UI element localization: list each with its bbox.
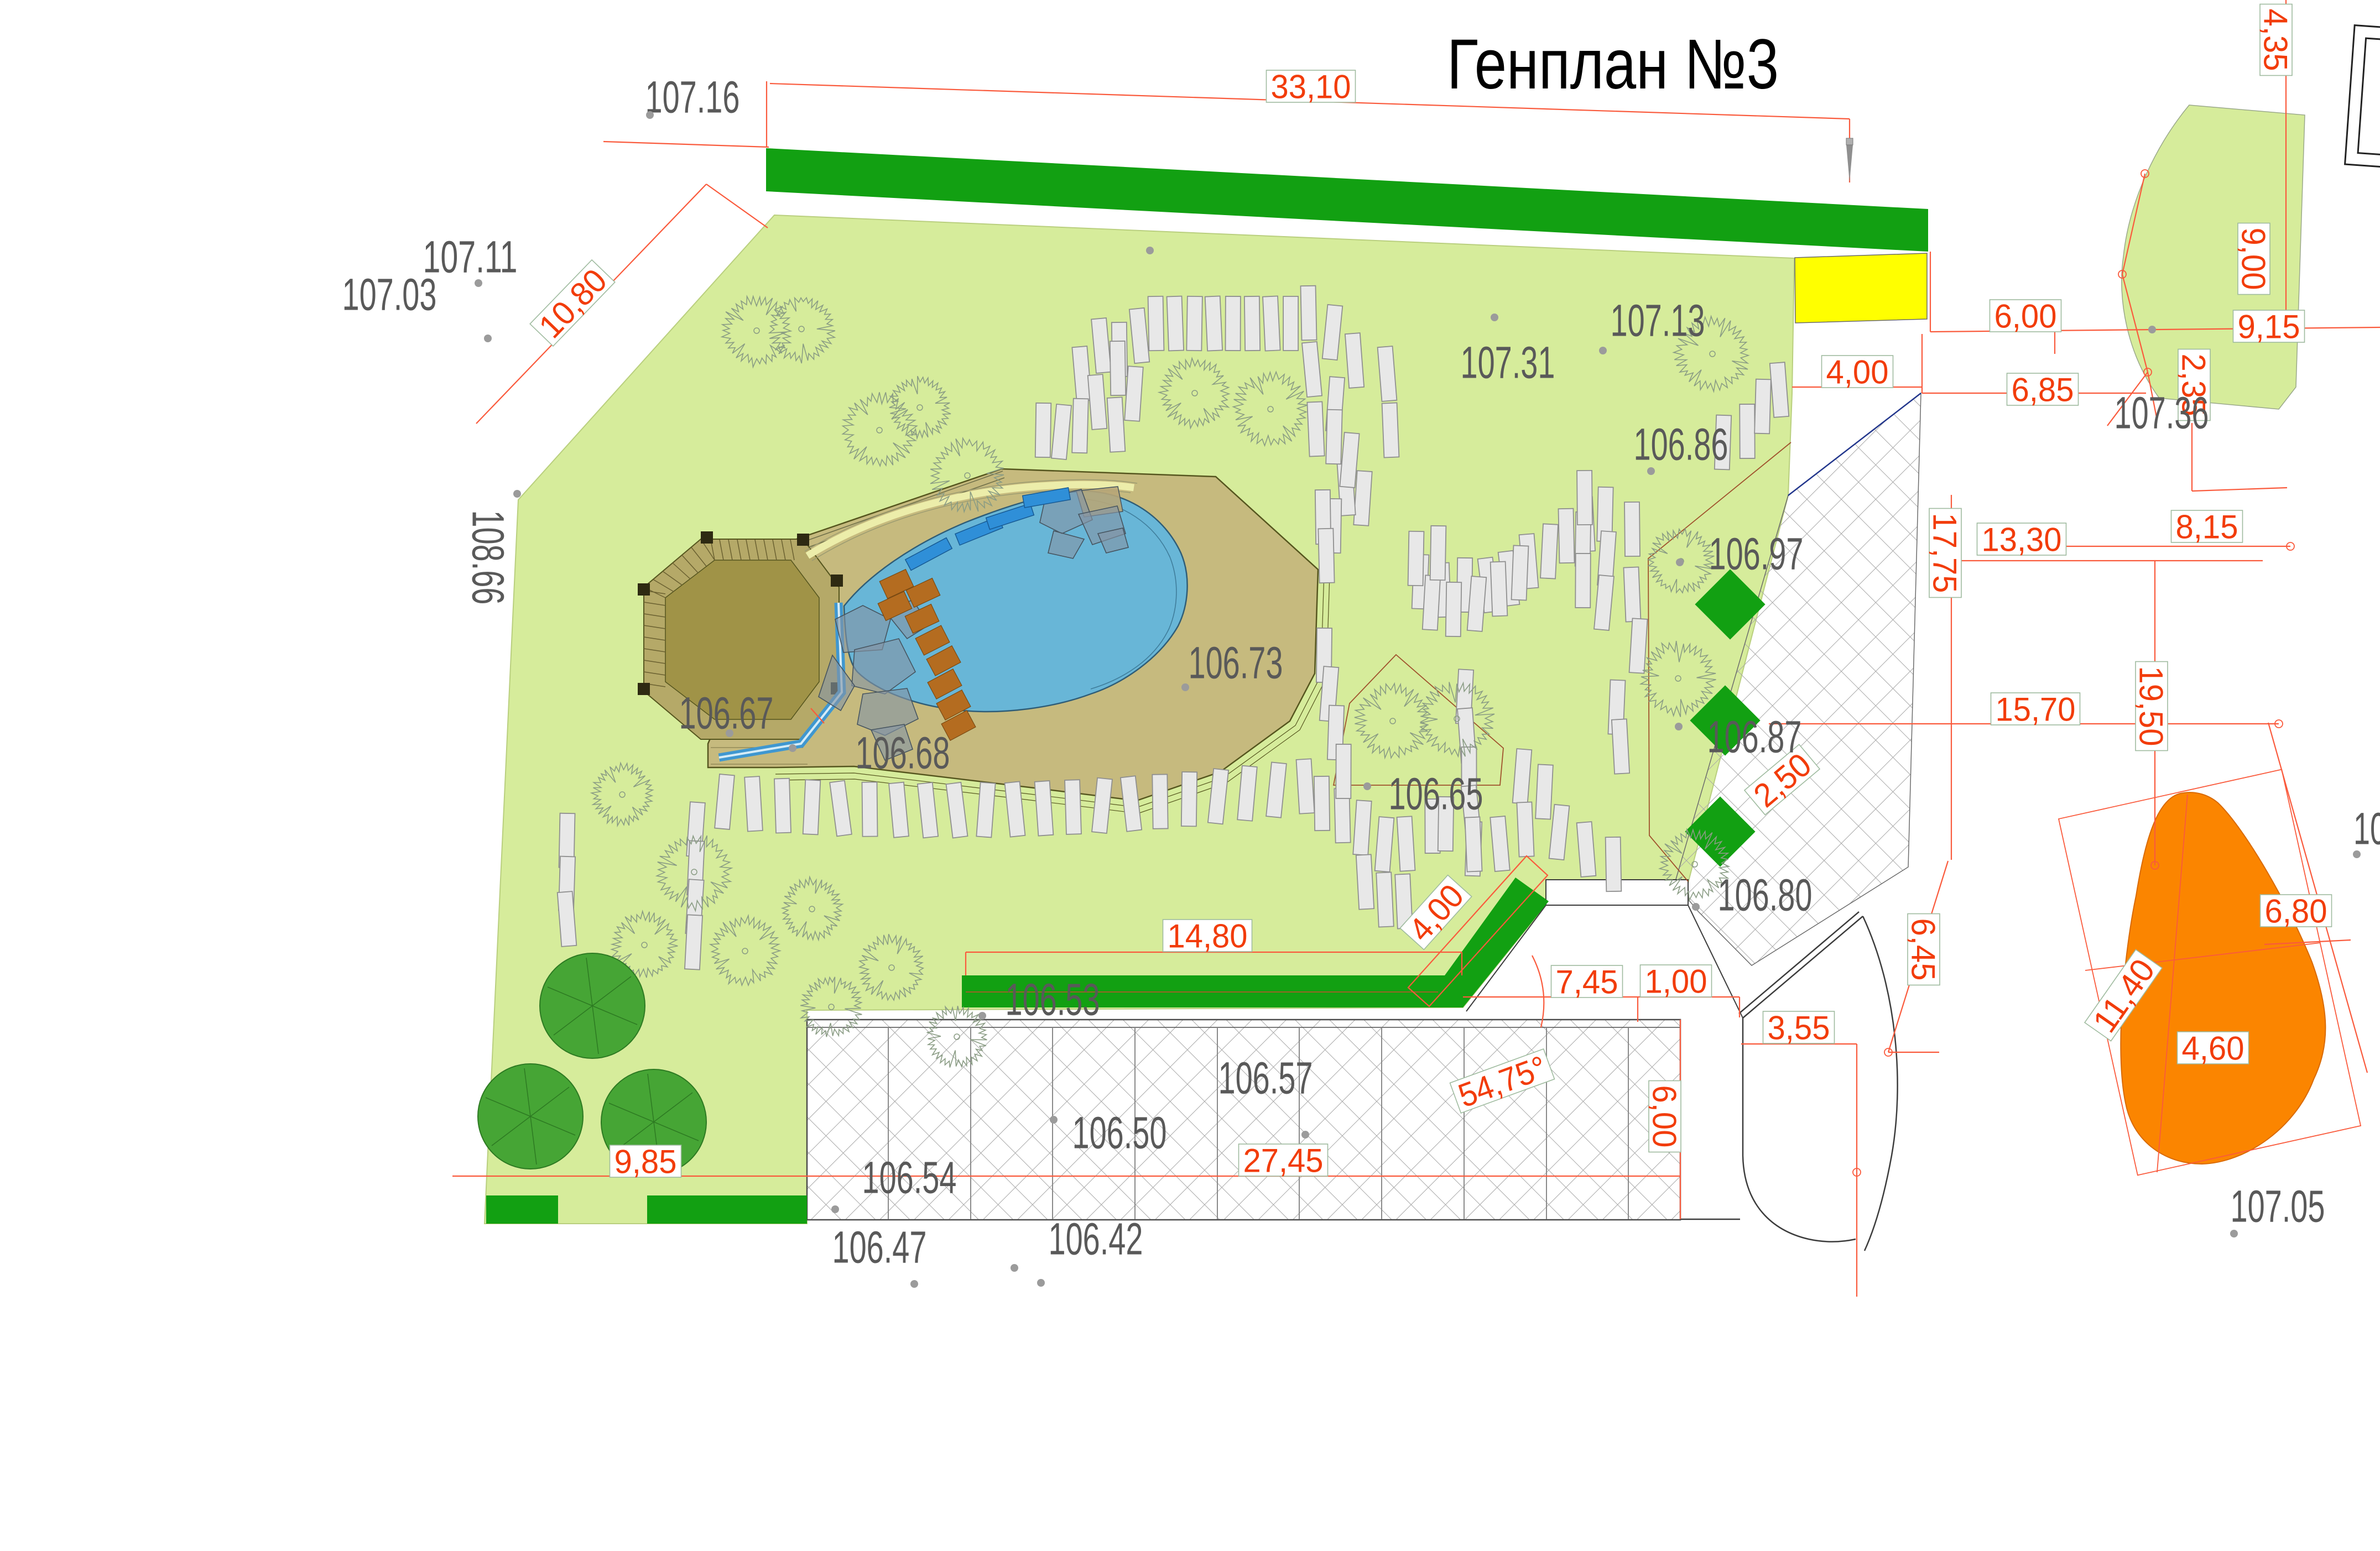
svg-text:13,30: 13,30 [1982,521,2062,558]
svg-text:4,60: 4,60 [2182,1030,2244,1067]
svg-text:6,80: 6,80 [2265,893,2327,930]
svg-text:107.03: 107.03 [342,270,437,320]
svg-text:107.05: 107.05 [2231,1182,2325,1232]
svg-text:107.31: 107.31 [1461,338,1555,388]
svg-text:6,00: 6,00 [1994,298,2057,335]
svg-text:9,15: 9,15 [2238,309,2300,346]
svg-text:106.86: 106.86 [1634,420,1728,470]
svg-text:9,00: 9,00 [2235,228,2272,290]
svg-text:106.97: 106.97 [1709,529,1804,579]
svg-text:106.50: 106.50 [1072,1108,1167,1158]
svg-text:17,75: 17,75 [1926,513,1963,593]
svg-text:33,10: 33,10 [1271,69,1351,106]
svg-text:107.13: 107.13 [1611,296,1705,346]
svg-text:106.42: 106.42 [1049,1214,1143,1265]
svg-text:3,55: 3,55 [1768,1010,1830,1047]
svg-text:106.67: 106.67 [679,688,774,739]
svg-text:15,70: 15,70 [1996,691,2076,728]
svg-text:6,45: 6,45 [1904,918,1941,981]
svg-text:8,15: 8,15 [2176,509,2238,546]
svg-text:1,00: 1,00 [1645,963,1707,1000]
svg-text:106.54: 106.54 [862,1153,957,1203]
svg-text:107.16: 107.16 [645,72,740,123]
svg-text:106.47: 106.47 [832,1223,927,1273]
svg-text:107.36: 107.36 [2115,388,2209,438]
svg-text:9,85: 9,85 [614,1143,677,1181]
svg-text:6,00: 6,00 [1645,1085,1683,1148]
svg-text:107.11: 107.11 [423,232,518,283]
svg-text:106.87: 106.87 [1707,712,1802,763]
svg-text:14,80: 14,80 [1168,918,1248,955]
svg-text:106.80: 106.80 [1718,870,1813,921]
svg-text:7,45: 7,45 [1556,964,1618,1001]
svg-text:108.66: 108.66 [462,510,513,605]
svg-text:106.53: 106.53 [1006,975,1100,1025]
svg-text:6,85: 6,85 [2012,372,2074,409]
svg-text:106.68: 106.68 [856,728,950,779]
svg-text:19,50: 19,50 [2132,666,2169,746]
svg-text:10: 10 [2353,804,2380,854]
svg-text:106.73: 106.73 [1189,638,1283,688]
svg-text:27,45: 27,45 [1243,1142,1324,1179]
svg-text:106.65: 106.65 [1389,769,1483,819]
svg-text:Генплан №3: Генплан №3 [1447,25,1779,104]
svg-text:106.57: 106.57 [1218,1053,1313,1104]
svg-text:4,00: 4,00 [1826,354,1889,391]
svg-text:4,35: 4,35 [2257,9,2294,71]
